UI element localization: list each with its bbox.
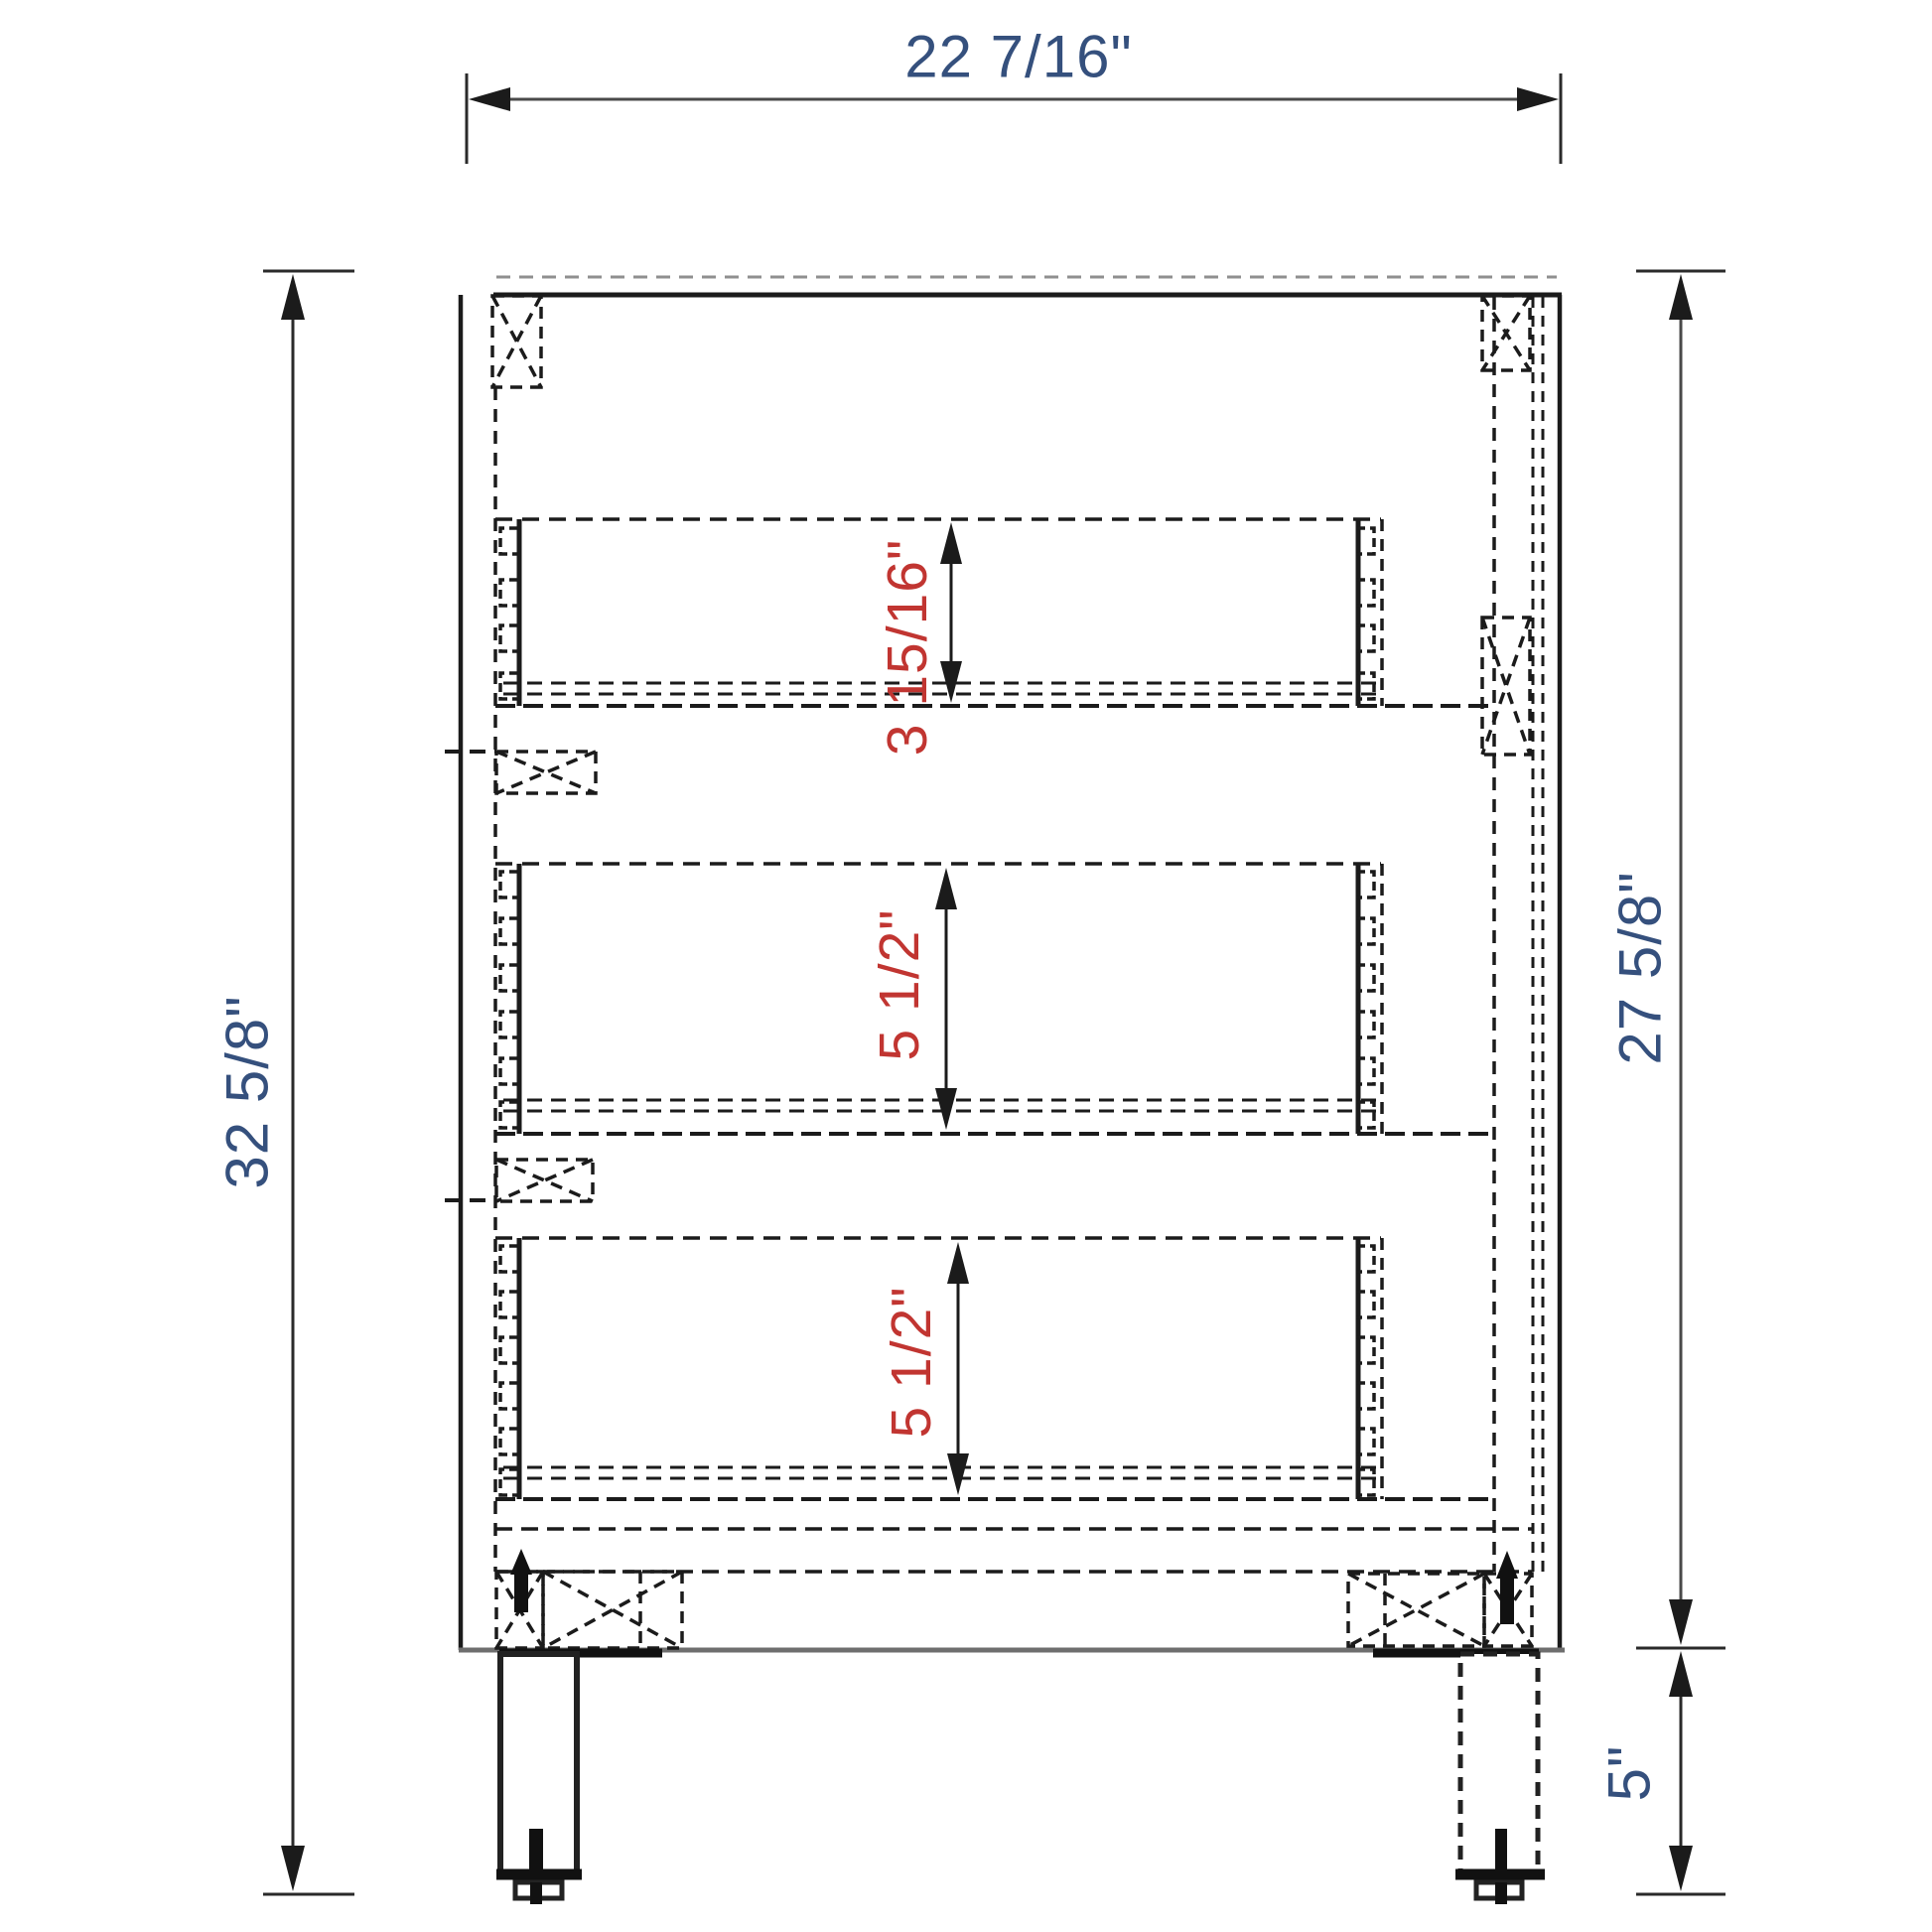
x-block-bottom-left-wide (543, 1572, 682, 1648)
x-block-back-mid1 (496, 752, 596, 793)
drawer3-depth-label: 5 1/2" (879, 1286, 944, 1438)
leg-bolt-right (1496, 1551, 1518, 1624)
drawer-1 (495, 519, 1494, 706)
drawer2-depth-label: 5 1/2" (867, 908, 932, 1060)
x-block-front-mid (1482, 618, 1530, 755)
drawer1-depth-label: 3 15/16" (875, 539, 940, 756)
leg-bolt-left (510, 1549, 532, 1612)
carcass-height-label: 27 5/8" (1606, 871, 1675, 1064)
x-block-bottom-right-wide (1348, 1574, 1484, 1646)
x-block-back-mid2 (496, 1160, 593, 1201)
x-block-front-top (1482, 296, 1530, 370)
leg-left (496, 1654, 582, 1904)
overall-height-label: 32 5/8" (213, 995, 282, 1188)
leg-right (1455, 1654, 1545, 1904)
leg-height-label: 5" (1595, 1745, 1664, 1802)
dim-drawer3-arrow (947, 1242, 969, 1495)
dim-drawer2-arrow (935, 868, 957, 1130)
dim-drawer1-arrow (940, 522, 962, 703)
drawing-canvas: 22 7/16" 32 5/8" 27 5/8" 5" 3 15/16" 5 1… (0, 0, 1932, 1932)
carcass-outline (445, 277, 1565, 1650)
drawer-2 (495, 864, 1494, 1134)
x-block-back-top (492, 296, 541, 387)
drawer-3 (495, 1238, 1494, 1499)
overall-depth-label: 22 7/16" (904, 23, 1132, 91)
